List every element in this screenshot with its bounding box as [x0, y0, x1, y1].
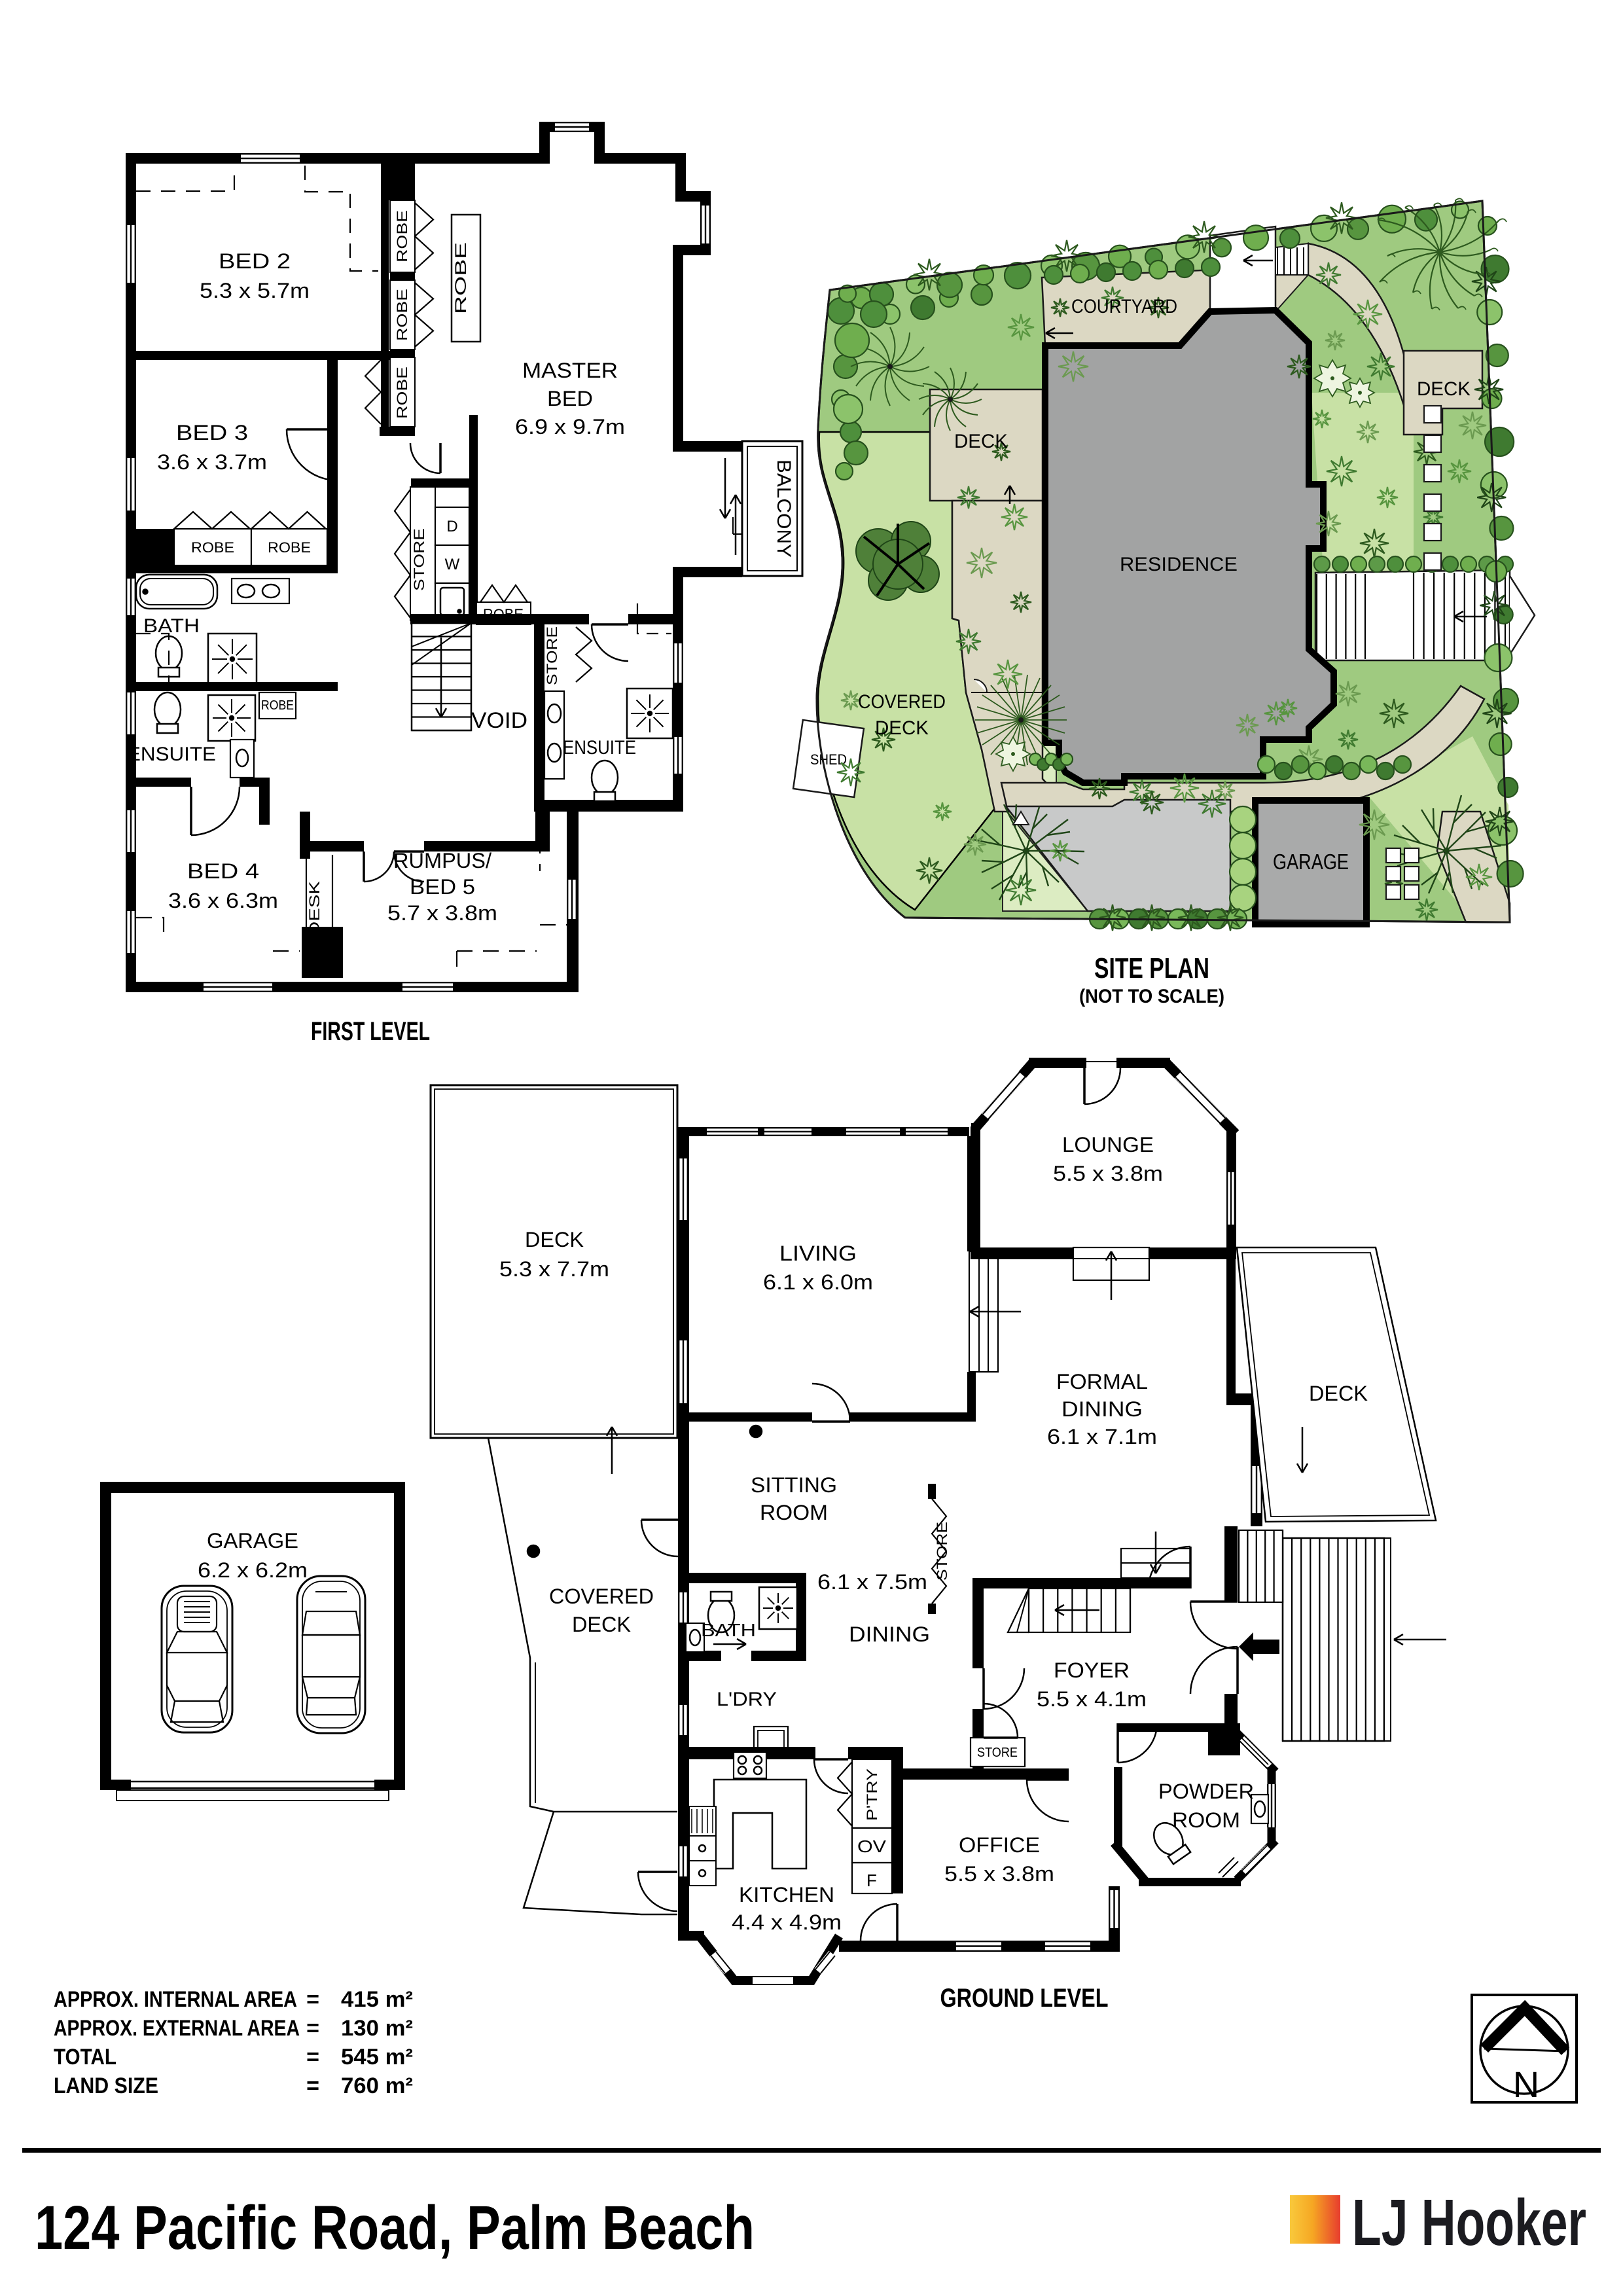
- svg-text:COVERED: COVERED: [549, 1585, 654, 1608]
- svg-text:RUMPUS/: RUMPUS/: [393, 849, 491, 872]
- svg-text:5.5 x 4.1m: 5.5 x 4.1m: [1037, 1687, 1147, 1711]
- svg-text:DECK: DECK: [525, 1228, 584, 1251]
- svg-text:STORE: STORE: [544, 626, 560, 685]
- svg-text:BED 3: BED 3: [176, 421, 248, 444]
- svg-text:DECK: DECK: [1309, 1382, 1368, 1405]
- svg-text:SITE PLAN: SITE PLAN: [1094, 952, 1209, 984]
- svg-text:N: N: [1513, 2064, 1539, 2105]
- svg-text:ENSUITE: ENSUITE: [127, 744, 216, 765]
- svg-text:POWDER: POWDER: [1158, 1780, 1254, 1803]
- svg-text:DINING: DINING: [849, 1623, 930, 1646]
- svg-text:=: =: [306, 2045, 319, 2070]
- svg-text:5.5 x 3.8m: 5.5 x 3.8m: [1053, 1162, 1163, 1185]
- svg-text:FORMAL: FORMAL: [1056, 1370, 1148, 1393]
- svg-text:6.1 x 7.5m: 6.1 x 7.5m: [817, 1570, 927, 1594]
- svg-text:STORE: STORE: [977, 1746, 1018, 1760]
- svg-text:FOYER: FOYER: [1054, 1659, 1130, 1682]
- svg-text:BATH: BATH: [143, 615, 200, 637]
- svg-text:3.6 x 3.7m: 3.6 x 3.7m: [157, 450, 267, 474]
- svg-text:F: F: [866, 1871, 877, 1890]
- svg-text:5.7 x 3.8m: 5.7 x 3.8m: [387, 901, 497, 925]
- svg-text:545 m²: 545 m²: [341, 2045, 413, 2070]
- svg-text:=: =: [306, 2073, 319, 2098]
- svg-text:RESIDENCE: RESIDENCE: [1120, 554, 1238, 575]
- svg-text:6.2 x 6.2m: 6.2 x 6.2m: [198, 1558, 308, 1582]
- svg-text:5.3 x 7.7m: 5.3 x 7.7m: [499, 1257, 609, 1281]
- svg-text:(NOT TO SCALE): (NOT TO SCALE): [1079, 986, 1224, 1007]
- svg-text:TOTAL: TOTAL: [54, 2045, 116, 2070]
- svg-text:BED: BED: [547, 387, 593, 410]
- svg-text:ROBE: ROBE: [394, 210, 410, 262]
- svg-text:6.9 x 9.7m: 6.9 x 9.7m: [515, 415, 625, 439]
- svg-text:VOID: VOID: [471, 708, 527, 733]
- svg-text:DECK: DECK: [954, 431, 1008, 452]
- svg-text:DINING: DINING: [1061, 1397, 1143, 1421]
- svg-text:KITCHEN: KITCHEN: [739, 1883, 834, 1907]
- svg-text:SITTING: SITTING: [751, 1473, 837, 1497]
- svg-text:130 m²: 130 m²: [341, 2016, 413, 2041]
- svg-text:SHED: SHED: [810, 751, 847, 768]
- svg-text:5.3 x 5.7m: 5.3 x 5.7m: [200, 279, 310, 302]
- svg-text:APPROX. INTERNAL AREA: APPROX. INTERNAL AREA: [54, 1987, 297, 2012]
- svg-text:ROBE: ROBE: [261, 698, 294, 713]
- svg-text:GROUND LEVEL: GROUND LEVEL: [940, 1984, 1109, 2013]
- svg-text:FIRST LEVEL: FIRST LEVEL: [311, 1017, 430, 1046]
- svg-text:6.1 x 7.1m: 6.1 x 7.1m: [1047, 1425, 1157, 1448]
- svg-text:P'TRY: P'TRY: [864, 1768, 880, 1821]
- svg-text:ROBE: ROBE: [268, 539, 311, 556]
- svg-text:5.5 x 3.8m: 5.5 x 3.8m: [944, 1862, 1054, 1886]
- svg-text:L'DRY: L'DRY: [717, 1689, 777, 1710]
- svg-text:OV: OV: [857, 1837, 887, 1856]
- svg-text:BED 2: BED 2: [219, 249, 291, 273]
- svg-text:APPROX. EXTERNAL AREA: APPROX. EXTERNAL AREA: [54, 2016, 300, 2041]
- svg-text:STORE: STORE: [411, 528, 427, 591]
- svg-text:LJ Hooker: LJ Hooker: [1352, 2186, 1586, 2259]
- svg-text:ROBE: ROBE: [191, 539, 234, 556]
- svg-text:BALCONY: BALCONY: [773, 459, 794, 558]
- svg-text:DECK: DECK: [875, 717, 929, 739]
- svg-text:COURTYARD: COURTYARD: [1071, 296, 1177, 317]
- svg-text:COVERED: COVERED: [858, 691, 946, 713]
- svg-text:ENSUITE: ENSUITE: [563, 737, 636, 759]
- svg-text:BED 5: BED 5: [410, 875, 475, 899]
- svg-text:GARAGE: GARAGE: [1273, 850, 1349, 874]
- svg-text:D: D: [446, 518, 457, 535]
- svg-text:ROBE: ROBE: [394, 367, 410, 419]
- svg-text:415 m²: 415 m²: [341, 1987, 413, 2012]
- svg-text:GARAGE: GARAGE: [207, 1529, 298, 1552]
- svg-text:4.4 x 4.9m: 4.4 x 4.9m: [732, 1910, 842, 1934]
- svg-text:760 m²: 760 m²: [341, 2073, 413, 2098]
- svg-text:LOUNGE: LOUNGE: [1062, 1133, 1154, 1157]
- svg-text:BED 4: BED 4: [187, 859, 259, 883]
- svg-text:OFFICE: OFFICE: [959, 1833, 1040, 1857]
- svg-text:DECK: DECK: [1417, 378, 1471, 400]
- svg-text:BATH: BATH: [701, 1620, 756, 1640]
- svg-text:ROOM: ROOM: [760, 1501, 828, 1524]
- svg-text:=: =: [306, 1987, 319, 2012]
- svg-text:ROBE: ROBE: [394, 289, 410, 341]
- svg-text:MASTER: MASTER: [522, 359, 618, 382]
- svg-text:W: W: [445, 556, 460, 573]
- svg-text:ROBE: ROBE: [452, 242, 470, 314]
- svg-text:124 Pacific Road, Palm Beach: 124 Pacific Road, Palm Beach: [35, 2193, 755, 2263]
- svg-text:=: =: [306, 2016, 319, 2041]
- svg-text:STORE: STORE: [934, 1522, 950, 1581]
- svg-text:6.1 x 6.0m: 6.1 x 6.0m: [763, 1270, 873, 1294]
- svg-text:LAND SIZE: LAND SIZE: [54, 2073, 158, 2098]
- svg-text:3.6 x 6.3m: 3.6 x 6.3m: [168, 889, 278, 912]
- svg-text:DECK: DECK: [572, 1613, 631, 1636]
- svg-text:LIVING: LIVING: [779, 1242, 857, 1265]
- svg-text:ROOM: ROOM: [1172, 1808, 1240, 1832]
